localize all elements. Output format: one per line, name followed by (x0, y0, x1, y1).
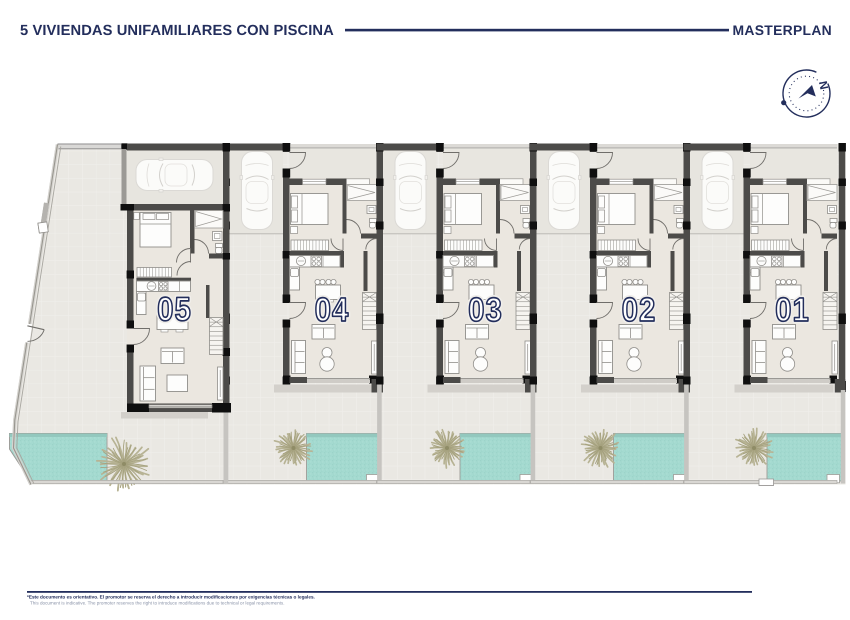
svg-text:5 VIVIENDAS UNIFAMILIARES CON: 5 VIVIENDAS UNIFAMILIARES CON PISCINA (20, 23, 334, 39)
svg-text:N: N (816, 80, 829, 91)
svg-text:*Este documento es orientativo: *Este documento es orientativo. El promo… (27, 595, 315, 600)
svg-text:MASTERPLAN: MASTERPLAN (733, 22, 832, 38)
svg-text:This document is indicative. T: This document is indicative. The promote… (30, 601, 284, 606)
